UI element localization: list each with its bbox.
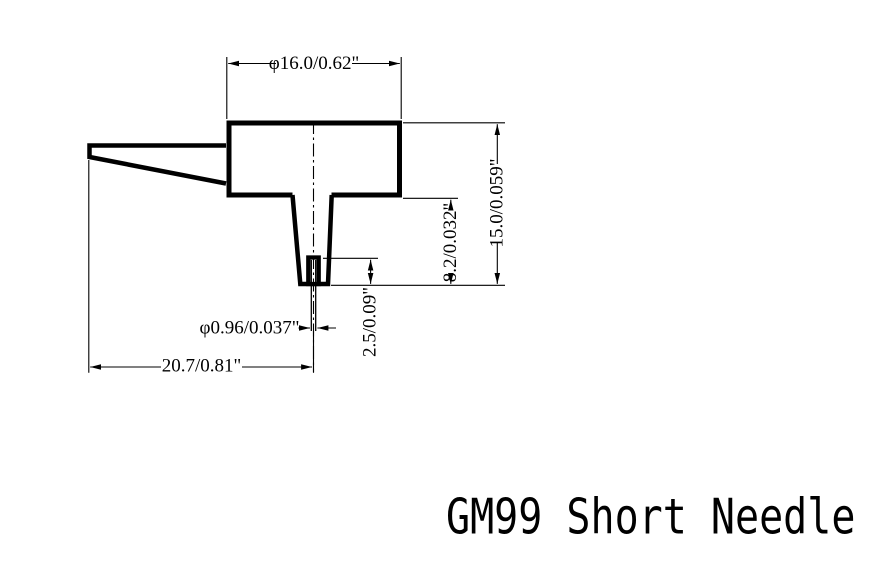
technical-drawing-page: φ16.0/0.62" 15.0/0.059" 8.2/0.032" 2.5/0… (0, 0, 871, 565)
drawing-title: GM99 Short Needle (446, 491, 855, 550)
head-outline (229, 123, 400, 195)
needle-drawing: φ16.0/0.62" 15.0/0.059" 8.2/0.032" 2.5/0… (0, 0, 871, 565)
dim-tip-height (323, 258, 378, 284)
dim-total-height-label: 15.0/0.059" (486, 158, 507, 247)
dim-total-length (89, 160, 314, 373)
dim-head-diameter-label: φ16.0/0.62" (269, 53, 360, 74)
part-outline (90, 123, 400, 284)
dim-tip-height-label: 2.5/0.09" (360, 287, 381, 357)
dim-stem-height-label: 8.2/0.032" (440, 203, 461, 283)
dim-total-length-label: 20.7/0.81" (162, 356, 242, 377)
dim-needle-diameter-label: φ0.96/0.037" (199, 318, 299, 339)
dim-total-height (331, 123, 505, 285)
handle-outline (90, 146, 227, 184)
